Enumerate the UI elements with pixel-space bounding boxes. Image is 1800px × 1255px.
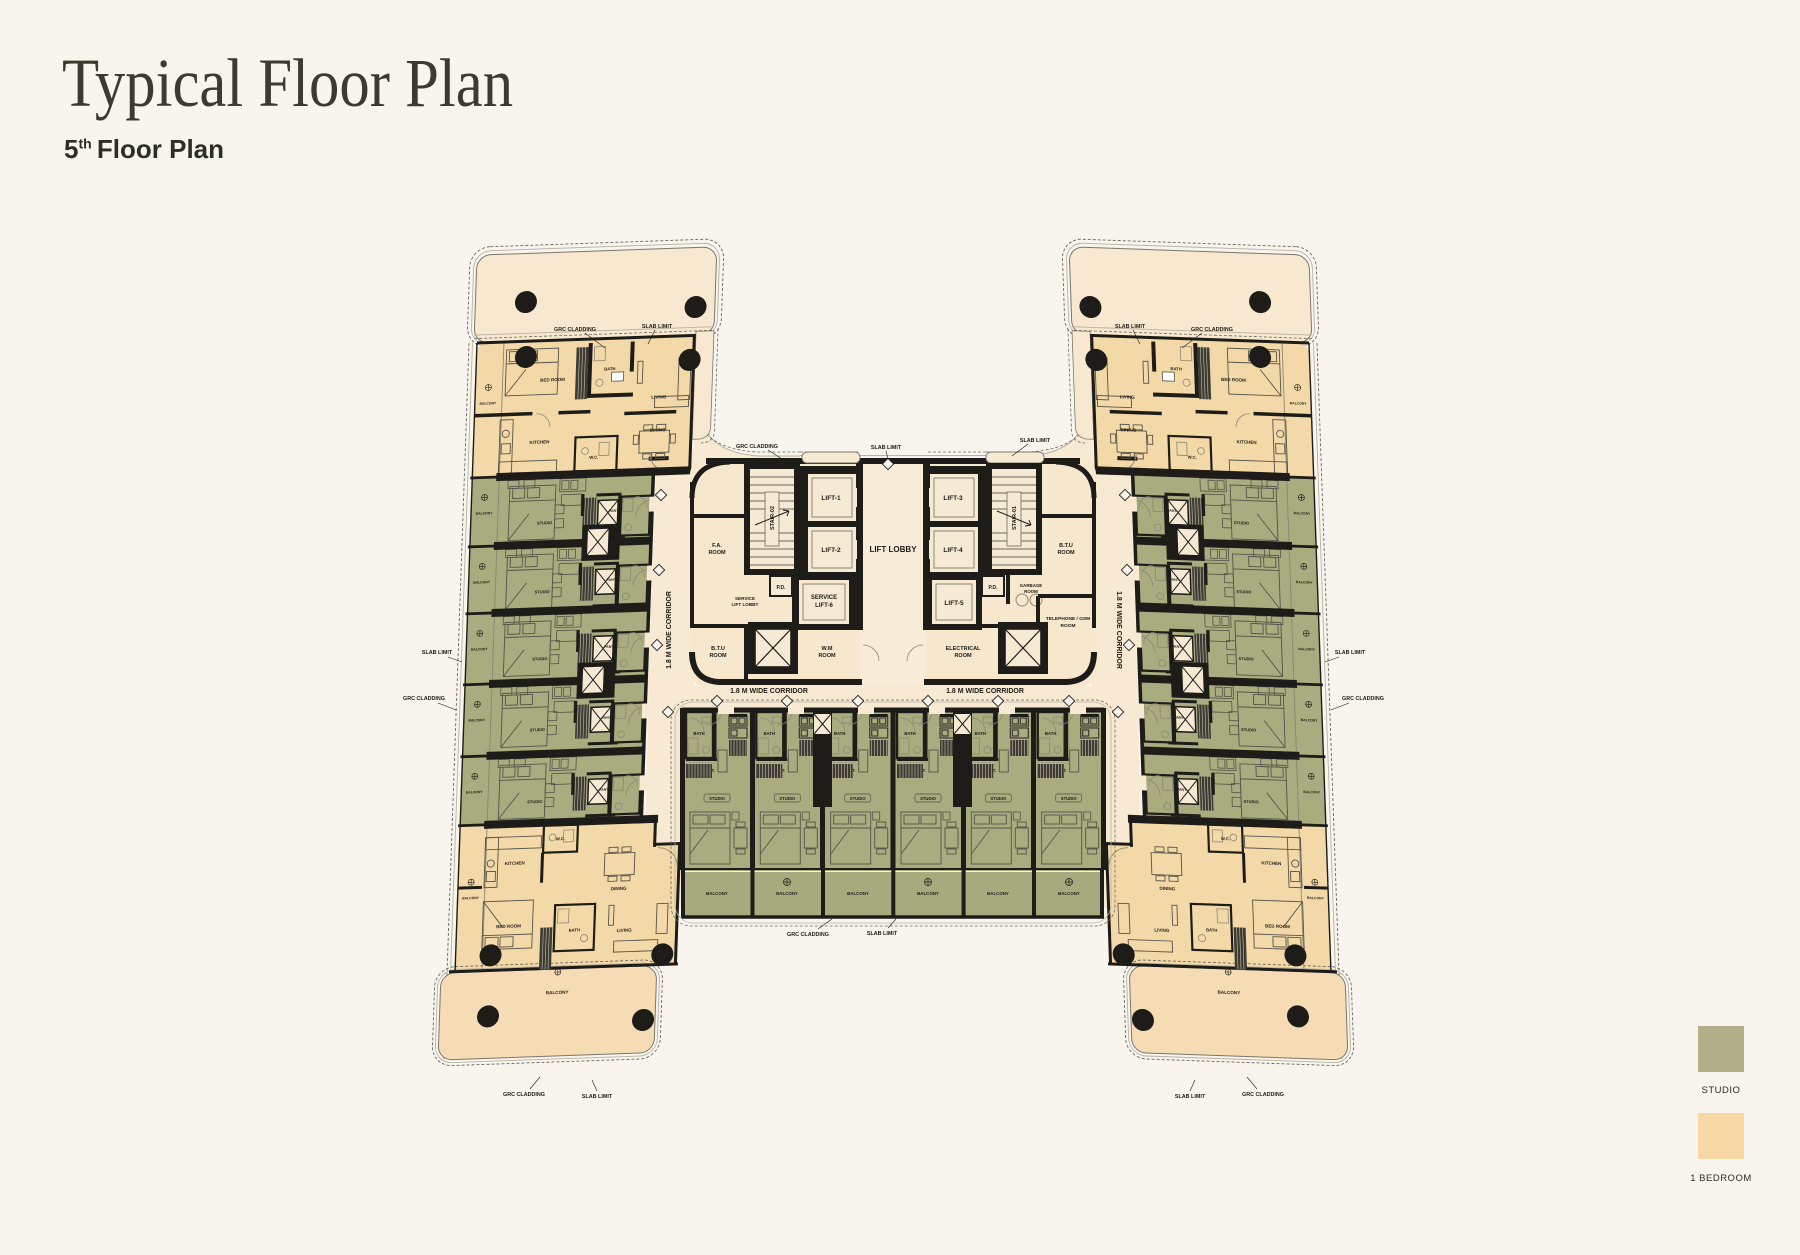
svg-text:PANT.: PANT. <box>1177 788 1187 792</box>
svg-text:DINING: DINING <box>650 427 666 433</box>
svg-text:BALCONY: BALCONY <box>1290 401 1308 406</box>
svg-text:1.8 M WIDE CORRIDOR: 1.8 M WIDE CORRIDOR <box>666 591 673 669</box>
svg-text:SLAB LIMIT: SLAB LIMIT <box>1335 650 1366 656</box>
svg-text:BALCONY: BALCONY <box>1294 511 1312 516</box>
svg-text:F.A.: F.A. <box>712 543 722 549</box>
svg-text:STUDIO: STUDIO <box>537 520 552 526</box>
svg-text:GRC CLADDING: GRC CLADDING <box>787 932 829 938</box>
svg-text:LIFT-3: LIFT-3 <box>943 495 963 502</box>
svg-text:KITCHEN: KITCHEN <box>1237 439 1257 445</box>
svg-text:STUDIO: STUDIO <box>530 727 545 733</box>
svg-text:LIFT-1: LIFT-1 <box>821 495 841 502</box>
svg-text:STUDIO: STUDIO <box>1239 656 1254 662</box>
svg-text:1.8 M WIDE CORRIDOR: 1.8 M WIDE CORRIDOR <box>730 688 808 695</box>
svg-text:BALCONY: BALCONY <box>473 580 491 585</box>
svg-text:STUDIO: STUDIO <box>1702 1085 1741 1096</box>
svg-text:BALCONY: BALCONY <box>1298 647 1316 652</box>
svg-text:STUDIO: STUDIO <box>532 656 547 662</box>
svg-text:BALCONY: BALCONY <box>466 790 484 795</box>
svg-text:BALCONY: BALCONY <box>1296 580 1314 585</box>
svg-text:PANT.: PANT. <box>604 645 614 649</box>
svg-text:LIFT-2: LIFT-2 <box>821 547 841 554</box>
svg-text:SLAB LIMIT: SLAB LIMIT <box>422 650 453 656</box>
svg-text:SLAB LIMIT: SLAB LIMIT <box>867 931 898 937</box>
svg-text:SERVICE: SERVICE <box>811 595 837 601</box>
svg-text:ROOM: ROOM <box>709 653 727 659</box>
svg-text:GRC CLADDING: GRC CLADDING <box>1191 327 1233 333</box>
svg-text:1.8 M WIDE CORRIDOR: 1.8 M WIDE CORRIDOR <box>1115 591 1122 669</box>
svg-text:W.C.: W.C. <box>589 455 598 460</box>
svg-text:BATH: BATH <box>604 366 615 371</box>
svg-text:BATH: BATH <box>569 927 580 932</box>
svg-text:1 BEDROOM: 1 BEDROOM <box>1690 1173 1752 1184</box>
svg-text:LIFT LOBBY: LIFT LOBBY <box>869 545 917 554</box>
svg-text:BALCONY: BALCONY <box>468 718 486 723</box>
svg-text:GRC CLADDING: GRC CLADDING <box>554 327 596 333</box>
svg-text:STUDIO: STUDIO <box>535 589 550 595</box>
svg-text:1.8 M WIDE CORRIDOR: 1.8 M WIDE CORRIDOR <box>946 688 1024 695</box>
svg-text:ELECTRICAL: ELECTRICAL <box>946 646 981 652</box>
svg-text:W.C.: W.C. <box>1221 836 1230 841</box>
svg-text:B.T.U: B.T.U <box>1059 543 1073 549</box>
svg-text:SLAB LIMIT: SLAB LIMIT <box>1175 1094 1206 1100</box>
svg-text:P.D.: P.D. <box>988 585 998 591</box>
svg-text:LIFT-6: LIFT-6 <box>815 603 833 609</box>
svg-text:B.T.U: B.T.U <box>711 646 725 652</box>
svg-text:BALCONY: BALCONY <box>706 891 728 896</box>
svg-text:KITCHEN: KITCHEN <box>1261 860 1281 866</box>
svg-text:SLAB LIMIT: SLAB LIMIT <box>871 445 902 451</box>
svg-text:TELEPHONE / GSM: TELEPHONE / GSM <box>1046 616 1090 622</box>
svg-text:SLAB LIMIT: SLAB LIMIT <box>582 1094 613 1100</box>
svg-text:LIVING: LIVING <box>617 928 633 934</box>
svg-text:ROOM: ROOM <box>818 653 836 659</box>
svg-text:DINING: DINING <box>1120 427 1136 433</box>
svg-text:BALCONY: BALCONY <box>1058 891 1080 896</box>
svg-text:ROOM: ROOM <box>1024 589 1038 594</box>
svg-text:BALCONY: BALCONY <box>776 891 798 896</box>
svg-text:STUDIO: STUDIO <box>1236 589 1251 595</box>
svg-text:BALCONY: BALCONY <box>479 401 497 406</box>
svg-text:BED ROOM: BED ROOM <box>1265 923 1290 929</box>
svg-text:GRC CLADDING: GRC CLADDING <box>736 444 778 450</box>
svg-text:GARBAGE: GARBAGE <box>1020 583 1043 588</box>
svg-text:BALCONY: BALCONY <box>917 891 939 896</box>
svg-text:W.M: W.M <box>822 646 833 652</box>
svg-text:BALCONY: BALCONY <box>987 891 1009 896</box>
svg-text:STUDIO: STUDIO <box>1241 727 1256 733</box>
svg-text:W.C.: W.C. <box>556 836 565 841</box>
svg-text:PANT.: PANT. <box>602 716 612 720</box>
svg-text:PANT.: PANT. <box>609 509 619 513</box>
svg-text:SLAB LIMIT: SLAB LIMIT <box>1020 438 1051 444</box>
svg-text:KITCHEN: KITCHEN <box>529 439 549 445</box>
svg-text:LIFT-5: LIFT-5 <box>944 600 964 607</box>
svg-text:GRC CLADDING: GRC CLADDING <box>1342 696 1384 702</box>
svg-text:LIFT-4: LIFT-4 <box>943 547 963 554</box>
svg-text:KITCHEN: KITCHEN <box>505 860 525 866</box>
svg-text:SLAB LIMIT: SLAB LIMIT <box>1115 324 1146 330</box>
svg-text:LIVING: LIVING <box>1120 394 1136 400</box>
svg-text:PANT.: PANT. <box>1169 578 1179 582</box>
svg-text:BALCONY: BALCONY <box>546 990 569 996</box>
svg-text:BATH: BATH <box>1170 366 1181 371</box>
svg-text:PANT.: PANT. <box>599 788 609 792</box>
svg-text:BED ROOM: BED ROOM <box>540 377 565 383</box>
svg-text:GRC CLADDING: GRC CLADDING <box>503 1092 545 1098</box>
svg-text:BALCONY: BALCONY <box>1217 990 1240 996</box>
svg-text:BALCONY: BALCONY <box>847 891 869 896</box>
svg-text:STUDIO: STUDIO <box>1234 520 1249 526</box>
svg-text:PANT.: PANT. <box>1174 716 1184 720</box>
svg-text:SLAB LIMIT: SLAB LIMIT <box>642 324 673 330</box>
svg-text:ROOM: ROOM <box>1057 550 1075 556</box>
svg-text:PANT.: PANT. <box>1167 509 1177 513</box>
svg-text:DINING: DINING <box>1159 886 1175 892</box>
svg-text:ROOM: ROOM <box>1061 623 1076 629</box>
svg-text:BALCONY: BALCONY <box>471 647 489 652</box>
svg-text:GRC CLADDING: GRC CLADDING <box>1242 1092 1284 1098</box>
svg-text:LIVING: LIVING <box>1154 928 1170 934</box>
svg-text:PANT.: PANT. <box>606 578 616 582</box>
svg-text:BALCONY: BALCONY <box>1301 718 1319 723</box>
svg-text:BALCONY: BALCONY <box>476 511 494 516</box>
svg-text:LIFT LOBBY: LIFT LOBBY <box>731 602 758 607</box>
svg-text:ROOM: ROOM <box>708 550 726 556</box>
svg-text:P.D.: P.D. <box>776 585 786 591</box>
svg-text:STUDIO: STUDIO <box>527 799 542 805</box>
svg-text:PANT.: PANT. <box>1172 645 1182 649</box>
svg-text:BALCONY: BALCONY <box>1303 790 1321 795</box>
svg-text:LIVING: LIVING <box>651 394 667 400</box>
svg-text:BED ROOM: BED ROOM <box>496 923 521 929</box>
svg-text:STUDIO: STUDIO <box>1244 799 1259 805</box>
svg-text:W.C.: W.C. <box>1188 455 1197 460</box>
svg-text:BATH: BATH <box>1206 927 1217 932</box>
svg-text:ROOM: ROOM <box>954 653 972 659</box>
svg-text:BALCONY: BALCONY <box>462 896 480 901</box>
svg-text:BALCONY: BALCONY <box>1307 896 1325 901</box>
svg-text:SERVICE: SERVICE <box>735 596 755 601</box>
svg-text:GRC CLADDING: GRC CLADDING <box>403 696 445 702</box>
svg-text:BED ROOM: BED ROOM <box>1221 377 1246 383</box>
svg-text:DINING: DINING <box>611 886 627 892</box>
